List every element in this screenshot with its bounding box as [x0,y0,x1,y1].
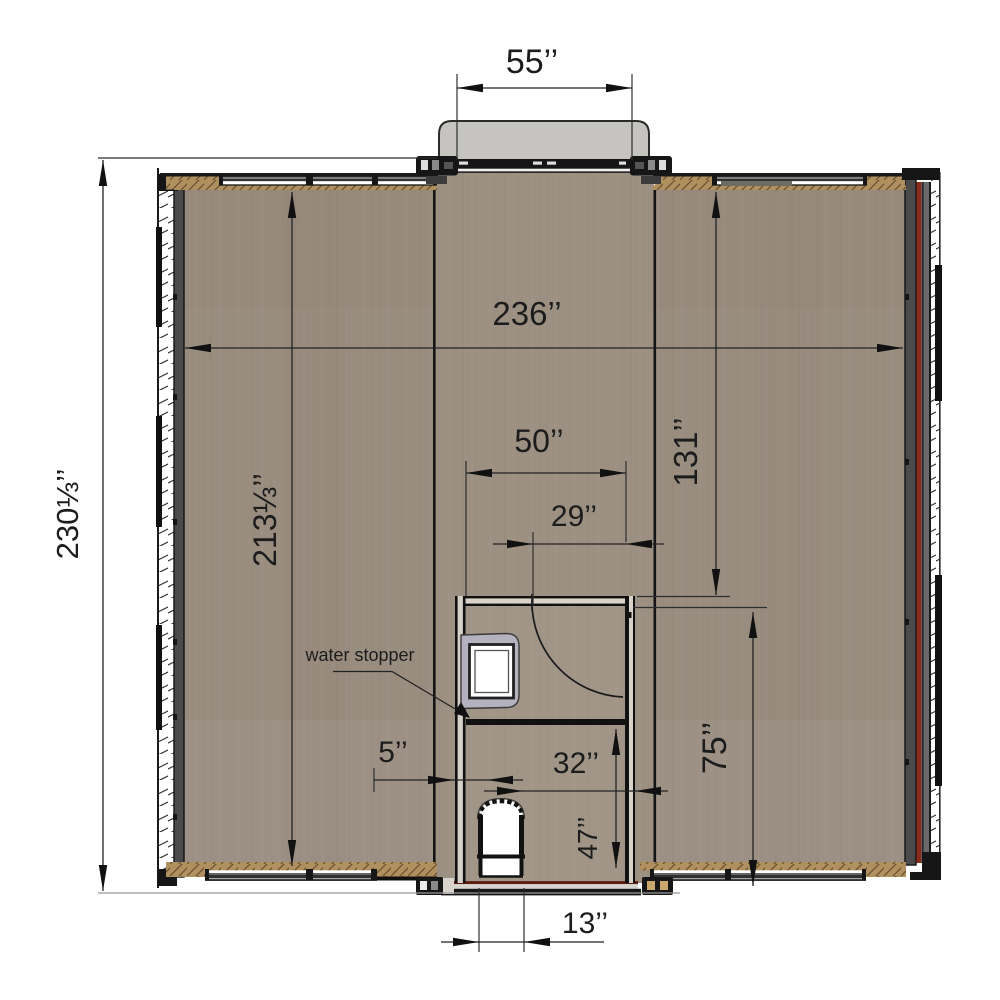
svg-text:50’’: 50’’ [514,423,563,459]
svg-text:13’’: 13’’ [562,907,608,940]
svg-text:32’’: 32’’ [553,747,599,780]
svg-text:213⅓’’: 213⅓’’ [247,473,283,567]
svg-text:131’’: 131’’ [667,417,704,486]
svg-text:236’’: 236’’ [492,295,561,332]
svg-text:55’’: 55’’ [506,43,558,81]
svg-text:230⅓’’: 230⅓’’ [50,469,85,560]
svg-text:75’’: 75’’ [696,722,734,774]
svg-text:5’’: 5’’ [378,736,407,769]
svg-text:29’’: 29’’ [551,500,597,533]
svg-text:water stopper: water stopper [304,645,414,665]
svg-text:47’’: 47’’ [572,816,603,859]
